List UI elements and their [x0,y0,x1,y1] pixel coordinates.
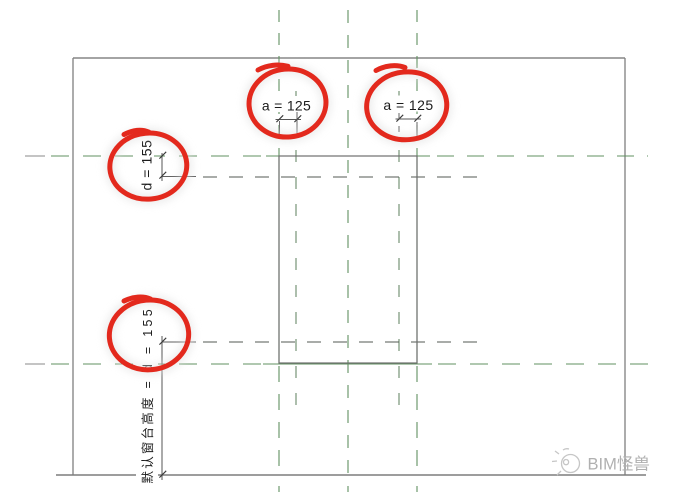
svg-text:d = 155: d = 155 [139,140,155,191]
svg-text:默认窗台高度 = d = 155: 默认窗台高度 = d = 155 [140,306,155,484]
svg-text:a = 125: a = 125 [262,98,311,114]
svg-text:BIM怪兽: BIM怪兽 [588,455,650,474]
svg-text:a = 125: a = 125 [383,97,433,113]
